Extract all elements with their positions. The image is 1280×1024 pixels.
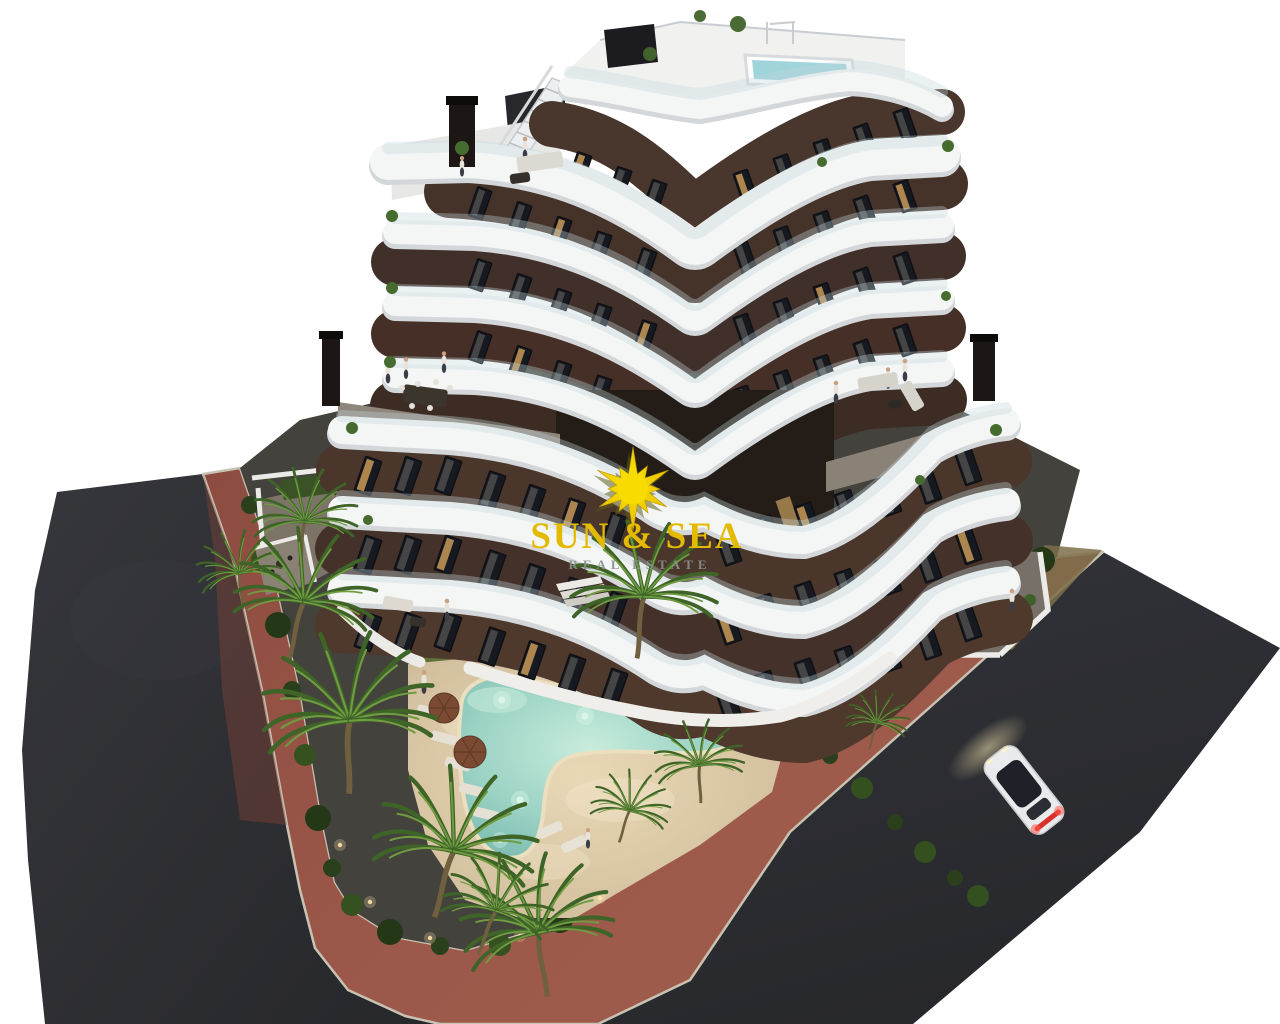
hedge [294,744,316,766]
poolside-hedge [851,777,873,799]
balcony-plant [384,356,396,368]
poolside-hedge [947,870,963,886]
person [444,599,449,622]
poolside-hedge [914,841,936,863]
person [421,670,426,694]
person [586,828,591,849]
person [404,357,409,379]
parasol [454,736,486,768]
roof-pergola [604,24,658,68]
watermark-subtitle: REAL ESTATE [568,557,711,572]
person [442,351,447,373]
person [833,381,838,404]
bistro-chair [288,556,293,561]
chimney [322,336,340,406]
hedge [323,859,341,877]
balcony-plant [346,422,358,434]
render-canvas: SUN & SEA REAL ESTATE [0,0,1280,1024]
hedge [377,919,403,945]
person [460,156,465,177]
architectural-render: SUN & SEA REAL ESTATE [0,0,1280,1024]
balcony-plant [915,475,925,485]
chair [409,403,415,409]
balcony-plant [386,210,398,222]
balcony-plant [817,157,827,167]
balcony-plant [990,424,1002,436]
hedge [265,612,291,638]
chimney [973,339,995,401]
person [1009,589,1014,612]
chair [415,381,421,387]
chimney-cap [970,334,998,342]
balcony-plant [942,140,954,152]
chair [427,405,433,411]
chair [399,385,405,391]
balcony-plant [363,515,373,525]
path-light [428,936,432,940]
chair [433,379,439,385]
path-light [338,843,342,847]
roof-plant [694,10,706,22]
path-light [368,900,372,904]
balcony-plant [455,141,469,155]
sun-core [618,474,648,504]
poolside-hedge [887,814,903,830]
hedge [305,805,331,831]
hedge [341,894,363,916]
watermark-title: SUN & SEA [530,516,743,557]
person [902,359,907,382]
roof-plant [730,16,746,32]
chimney-cap [319,331,343,339]
balcony-plant [941,291,951,301]
balcony-plant [386,282,398,294]
poolside-hedge [967,885,989,907]
chimney-cap [446,96,478,105]
path-light [598,896,602,900]
roof-plant [643,47,657,61]
chair [447,385,453,391]
